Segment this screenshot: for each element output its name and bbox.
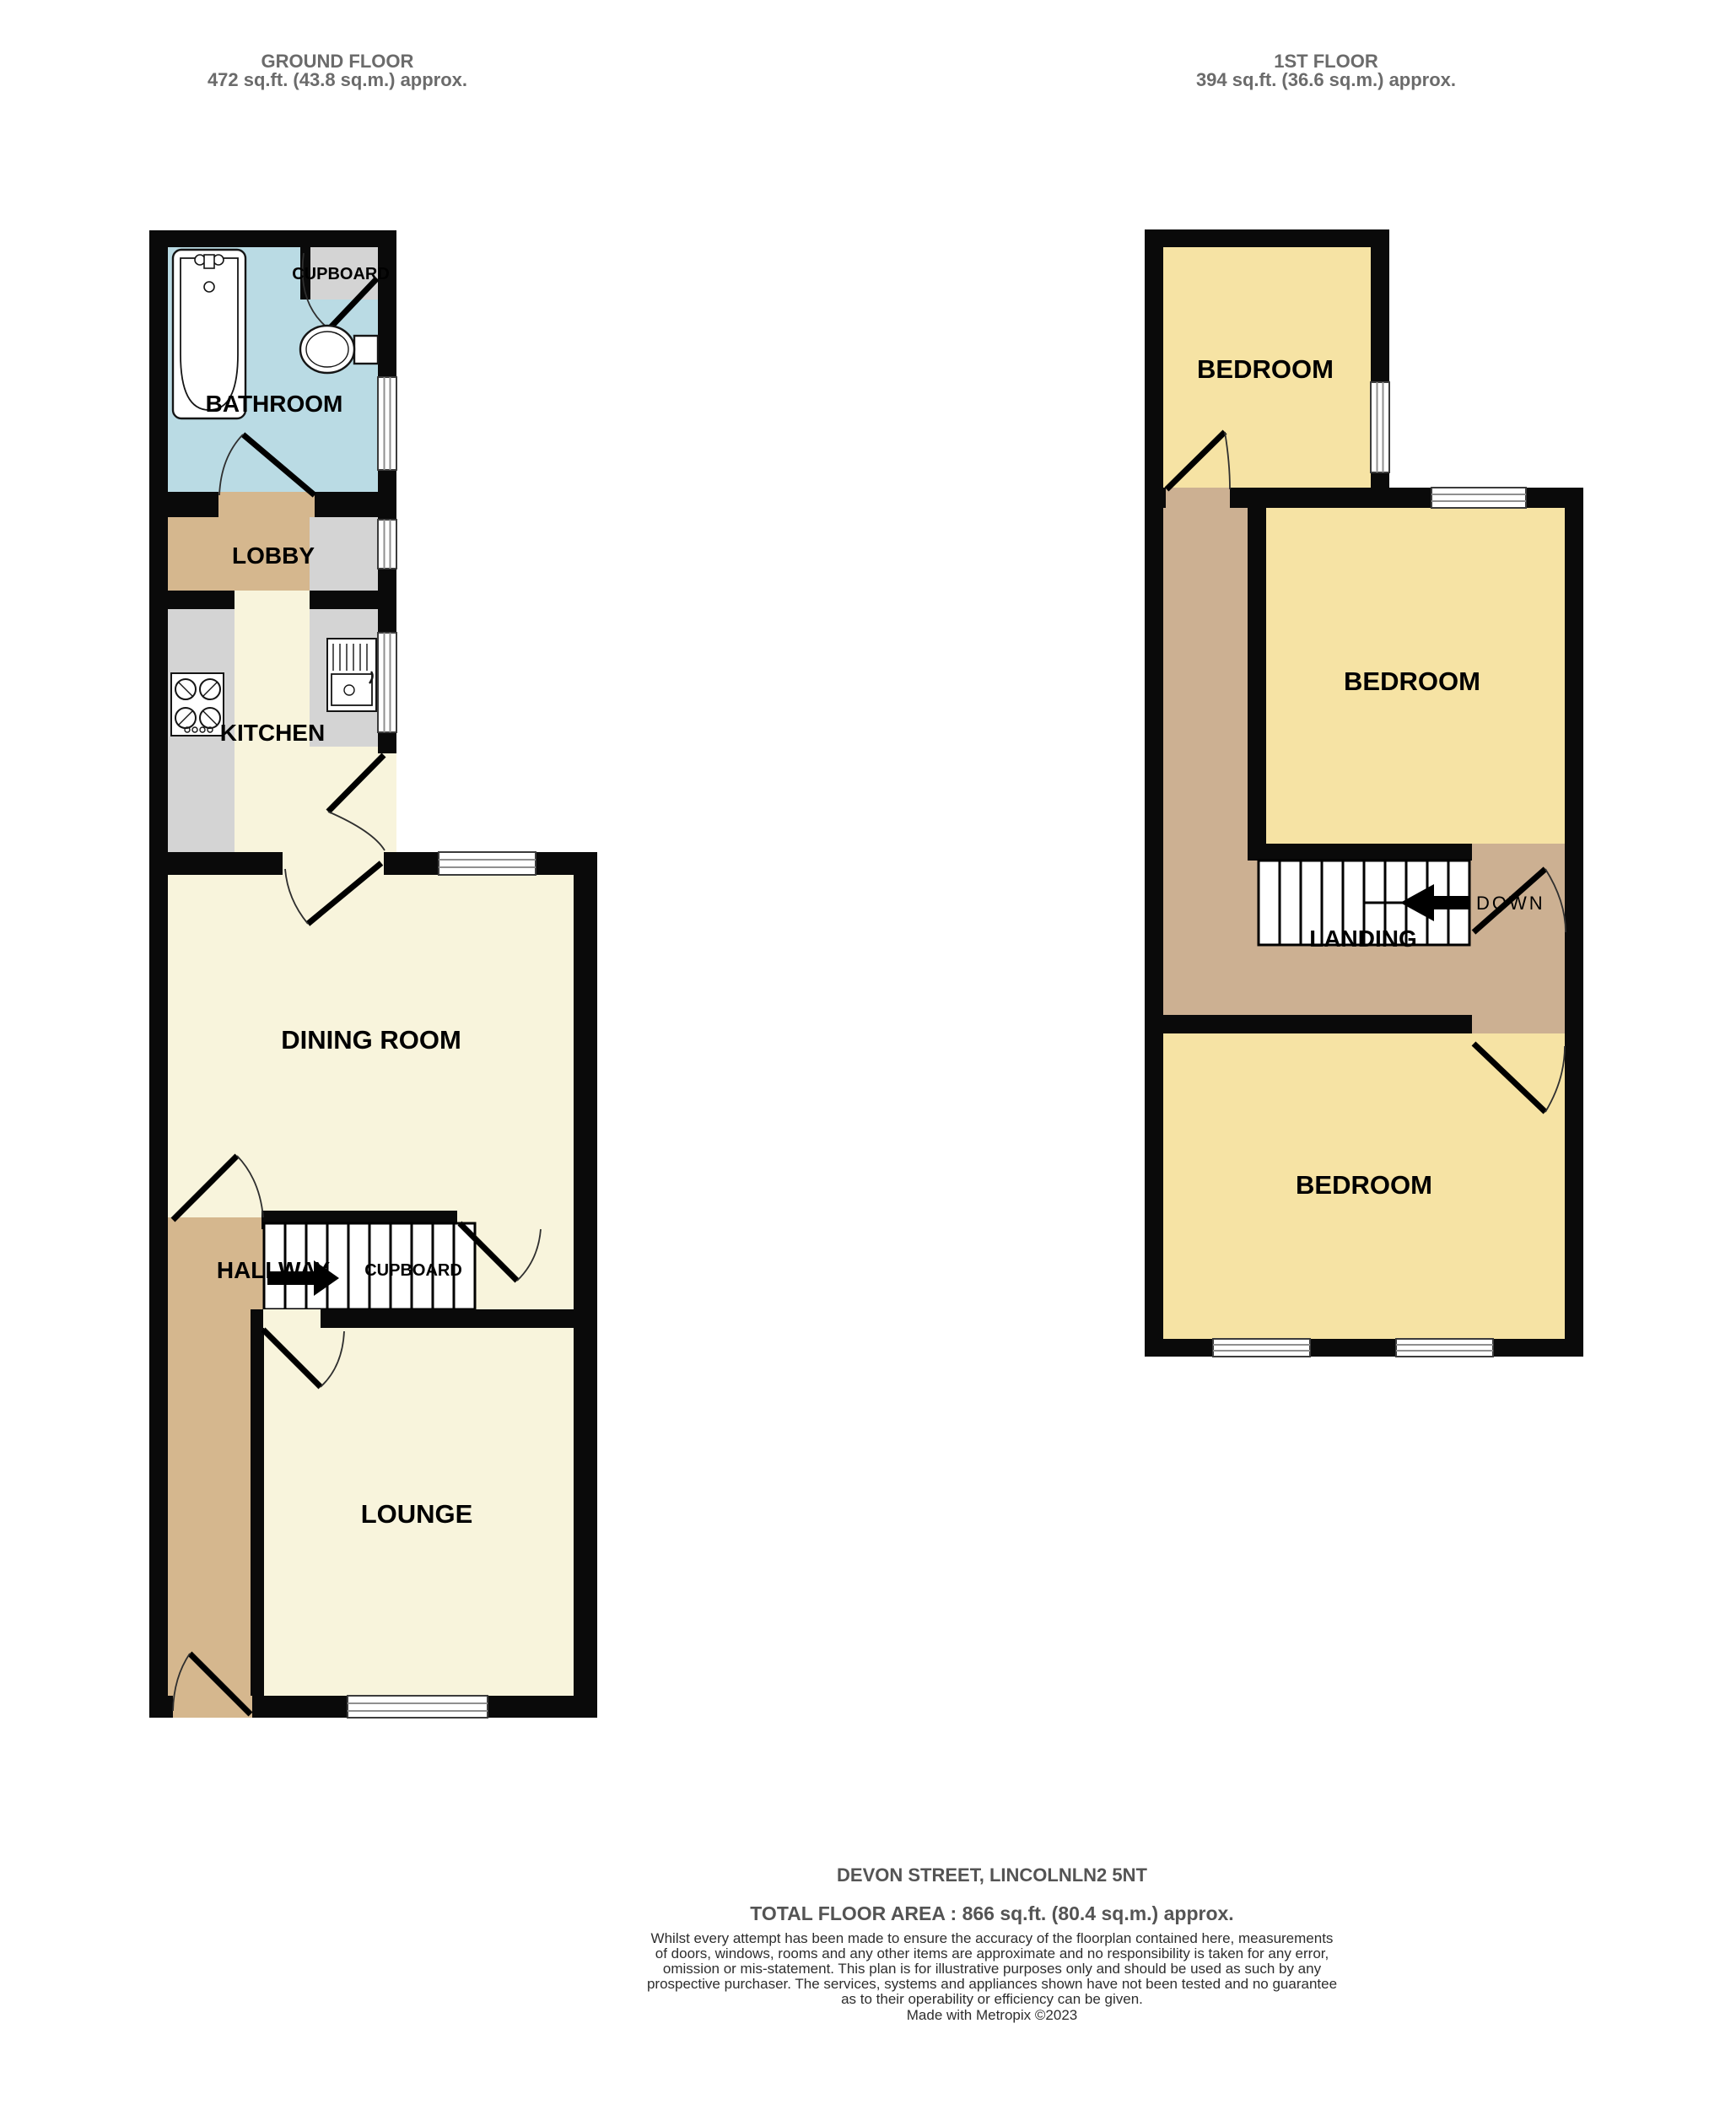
landing-bottom-wall <box>1145 1015 1472 1033</box>
down-label: DOWN <box>1476 893 1545 914</box>
floorplan-page: GROUND FLOOR 472 sq.ft. (43.8 sq.m.) app… <box>0 0 1736 2126</box>
bedroom-top-label: BEDROOM <box>1197 354 1334 384</box>
sink-icon <box>327 639 376 711</box>
bedroom-middle-bottom-wall <box>1248 844 1472 861</box>
hallway-area <box>168 1217 264 1696</box>
footer-block: DEVON STREET, LINCOLNLN2 5NT TOTAL FLOOR… <box>647 1864 1337 2023</box>
kitchen-label: KITCHEN <box>220 720 325 746</box>
lounge-window <box>348 1696 488 1718</box>
bedroom-bottom-window-right <box>1396 1339 1493 1357</box>
bedroom-top-door-opening <box>1166 488 1230 508</box>
lounge-door-opening <box>263 1309 321 1328</box>
lobby-kitchen-opening <box>235 591 310 609</box>
bathroom-door-opening <box>218 492 315 517</box>
ground-floor-plan: BATHROOM CUPBOARD LOBBY KITCHEN DINING R… <box>149 230 597 1718</box>
stove-icon <box>171 673 224 736</box>
bedroom-middle-window <box>1431 488 1526 508</box>
disclaimer-line-4: prospective purchaser. The services, sys… <box>647 1976 1337 1992</box>
disclaimer-line-3: omission or mis-statement. This plan is … <box>663 1961 1322 1977</box>
bedroom-middle-label: BEDROOM <box>1344 666 1480 696</box>
lobby-label: LOBBY <box>232 542 315 569</box>
bedroom-middle-left-wall <box>1248 508 1266 861</box>
disclaimer-line-2: of doors, windows, rooms and any other i… <box>655 1945 1329 1961</box>
bedroom-bottom-label: BEDROOM <box>1296 1170 1432 1200</box>
landing-strip-area <box>1163 508 1248 861</box>
bedroom-top-window <box>1371 382 1389 472</box>
landing-label: LANDING <box>1309 925 1417 952</box>
bathroom-label: BATHROOM <box>206 391 343 417</box>
bedroom-middle-door-opening <box>1472 844 1565 861</box>
hallway-label: HALLWAY <box>217 1257 331 1283</box>
stairs-cupboard-label: CUPBOARD <box>364 1261 462 1280</box>
disclaimer-line-5: as to their operability or efficiency ca… <box>841 1991 1143 2007</box>
hallway-lounge-wall <box>251 1328 264 1696</box>
address-text: DEVON STREET, LINCOLNLN2 5NT <box>837 1864 1147 1886</box>
credit-text: Made with Metropix ©2023 <box>907 2007 1077 2023</box>
kitchen-side-door-opening <box>378 753 396 852</box>
floorplan-canvas: GROUND FLOOR 472 sq.ft. (43.8 sq.m.) app… <box>0 0 1736 2126</box>
lounge-label: LOUNGE <box>361 1499 473 1529</box>
lobby-window <box>378 520 396 569</box>
stairs-bottom-wall <box>321 1309 574 1328</box>
kitchen-window <box>378 633 396 732</box>
lobby-side-area <box>310 517 378 591</box>
bedroom-bottom-window-left <box>1213 1339 1310 1357</box>
disclaimer-line-1: Whilst every attempt has been made to en… <box>651 1930 1334 1946</box>
dining-room-label: DINING ROOM <box>281 1025 461 1055</box>
ground-floor-area: 472 sq.ft. (43.8 sq.m.) approx. <box>208 69 467 90</box>
bathroom-window <box>378 377 396 470</box>
dining-window <box>439 852 536 875</box>
stairs-bottom-wall-stub <box>251 1309 263 1328</box>
first-floor-plan: BEDROOM BEDROOM LANDING DOWN BEDROOM <box>1145 229 1583 1357</box>
total-area-text: TOTAL FLOOR AREA : 866 sq.ft. (80.4 sq.m… <box>750 1902 1233 1924</box>
bathroom-cupboard-label: CUPBOARD <box>292 265 390 283</box>
bedroom-bottom-door-opening <box>1472 1015 1565 1033</box>
first-floor-area: 394 sq.ft. (36.6 sq.m.) approx. <box>1196 69 1456 90</box>
